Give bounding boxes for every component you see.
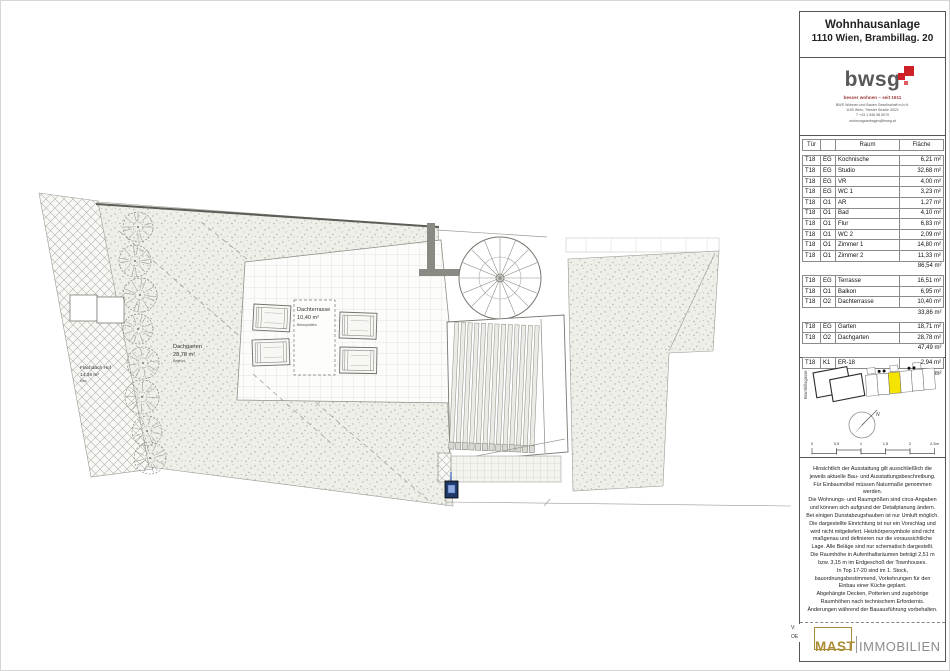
- table-row: T18O1AR1,27 m²: [803, 197, 944, 208]
- svg-text:2,5m: 2,5m: [930, 441, 940, 446]
- table-row: T18O1Bad4,10 m²: [803, 208, 944, 219]
- flachdach-surface: Kies: [80, 379, 87, 383]
- bwsg-wordmark: bwsg: [845, 68, 901, 91]
- logo-divider: [856, 636, 857, 653]
- svg-text:0: 0: [811, 441, 814, 446]
- floor-plan-drawing: Dachterrasse 10,40 m² Betonplatten: [1, 1, 796, 661]
- mast-brand-secondary: IMMOBILIEN: [859, 639, 941, 654]
- table-row: T18EGGarten18,71 m²: [803, 322, 944, 333]
- walkway-hatch: [438, 453, 451, 482]
- bwsg-email: wohnungsanfragen@bwsg.at: [800, 119, 945, 124]
- table-row: T18O1Balkon6,95 m²: [803, 286, 944, 297]
- bwsg-logo: bwsg: [845, 68, 901, 94]
- table-row: T18EGStudio32,68 m²: [803, 166, 944, 177]
- flachdach-label: Flachdach Hof: [80, 365, 112, 371]
- dachterrasse-area: 10,40 m²: [297, 315, 319, 321]
- svg-text:1: 1: [860, 441, 863, 446]
- bwsg-square-icon: [904, 81, 908, 85]
- dachgarten-label: Dachgarten: [173, 344, 202, 350]
- building-block: [813, 365, 865, 402]
- table-row: T18O2Dachgarten28,78 m²: [803, 333, 944, 344]
- table-row: T18O1Zimmer 114,80 m²: [803, 240, 944, 251]
- subtotal-row: 47,49 m²: [803, 343, 944, 353]
- table-header-row: TürRaumFläche: [803, 140, 944, 151]
- project-address: 1110 Wien, Brambillag. 20: [800, 33, 945, 44]
- mast-immobilien-logo: MAST IMMOBILIEN: [812, 626, 942, 658]
- dachterrasse-label: Dachterrasse: [297, 307, 330, 313]
- north-label: N: [876, 412, 880, 418]
- walkway-band: [451, 456, 561, 482]
- table-row: T18EGVR4,00 m²: [803, 176, 944, 187]
- dachgarten-area: 28,78 m²: [173, 352, 195, 358]
- stairwell-louvre-roof: [447, 315, 568, 462]
- bwsg-contact: BWS Wohnen und Bauen Gesellschaft m.b.H.…: [800, 103, 945, 124]
- title-block: Wohnhausanlage 1110 Wien, Brambillag. 20…: [799, 11, 946, 662]
- orientation-box: Brambillagasse: [800, 358, 945, 458]
- svg-text:2: 2: [909, 441, 912, 446]
- plan-sheet: Dachterrasse 10,40 m² Betonplatten: [0, 0, 950, 671]
- highlighted-unit: [888, 372, 901, 394]
- subtotal-row: 33,86 m²: [803, 307, 944, 317]
- roof-shaft-boxes: [70, 295, 124, 323]
- right-roof-garden: [566, 238, 719, 491]
- dachterrasse-surface: Betonplatten: [297, 323, 317, 327]
- room-table-box: TürRaumFlächeT18EGKochnische6,21 m²T18EG…: [800, 136, 945, 358]
- svg-text:0,5: 0,5: [834, 441, 840, 446]
- svg-text:1,5: 1,5: [883, 441, 889, 446]
- terrace-furniture: [253, 304, 291, 332]
- subtotal-row: 86,54 m²: [803, 261, 944, 271]
- site-key-plan: Brambillagasse: [800, 359, 945, 409]
- table-row: T18EGTerrasse16,51 m²: [803, 276, 944, 287]
- revision-labels: V: OE: [791, 624, 800, 642]
- dimension-line: [446, 498, 791, 506]
- table-row: T18EGKochnische6,21 m²: [803, 155, 944, 166]
- terrace-furniture: [252, 339, 290, 366]
- table-row: T18O1Flur6,83 m²: [803, 219, 944, 230]
- table-row: T18O2Dachterrasse10,40 m²: [803, 297, 944, 308]
- table-row: T18O1Zimmer 211,33 m²: [803, 250, 944, 261]
- project-header: Wohnhausanlage 1110 Wien, Brambillag. 20: [800, 12, 945, 58]
- street-label: Brambillagasse: [803, 370, 808, 399]
- bwsg-tagline: besser wohnen – seit 1911: [800, 95, 945, 100]
- flachdach-area: 14,39 m²: [80, 372, 99, 378]
- terrace-furniture: [340, 347, 377, 374]
- north-compass: N: [800, 408, 945, 440]
- townhouse-row: [865, 362, 936, 397]
- disclaimer-text: Hinsichtlich der Ausstattung gilt aussch…: [800, 458, 945, 623]
- mast-brand-primary: MAST: [815, 639, 855, 654]
- room-area-table: TürRaumFlächeT18EGKochnische6,21 m²T18EG…: [802, 139, 944, 378]
- bwsg-square-icon: [904, 66, 914, 76]
- revision-label: OE: [791, 633, 800, 642]
- developer-logo-box: bwsg besser wohnen – seit 1911 BWS Wohne…: [800, 58, 945, 136]
- table-row: T18EGWC 13,23 m²: [803, 187, 944, 198]
- terrace-furniture: [339, 312, 377, 339]
- version-label: V:: [791, 624, 800, 633]
- project-title: Wohnhausanlage: [800, 19, 945, 31]
- footer: V: OE MAST IMMOBILIEN: [800, 623, 945, 660]
- table-row: T18O1WC 22,09 m²: [803, 229, 944, 240]
- scale-bar: 00,511,522,5m: [800, 438, 945, 458]
- bwsg-square-icon: [898, 73, 905, 80]
- dachgarten-surface: Begrünt: [173, 359, 185, 363]
